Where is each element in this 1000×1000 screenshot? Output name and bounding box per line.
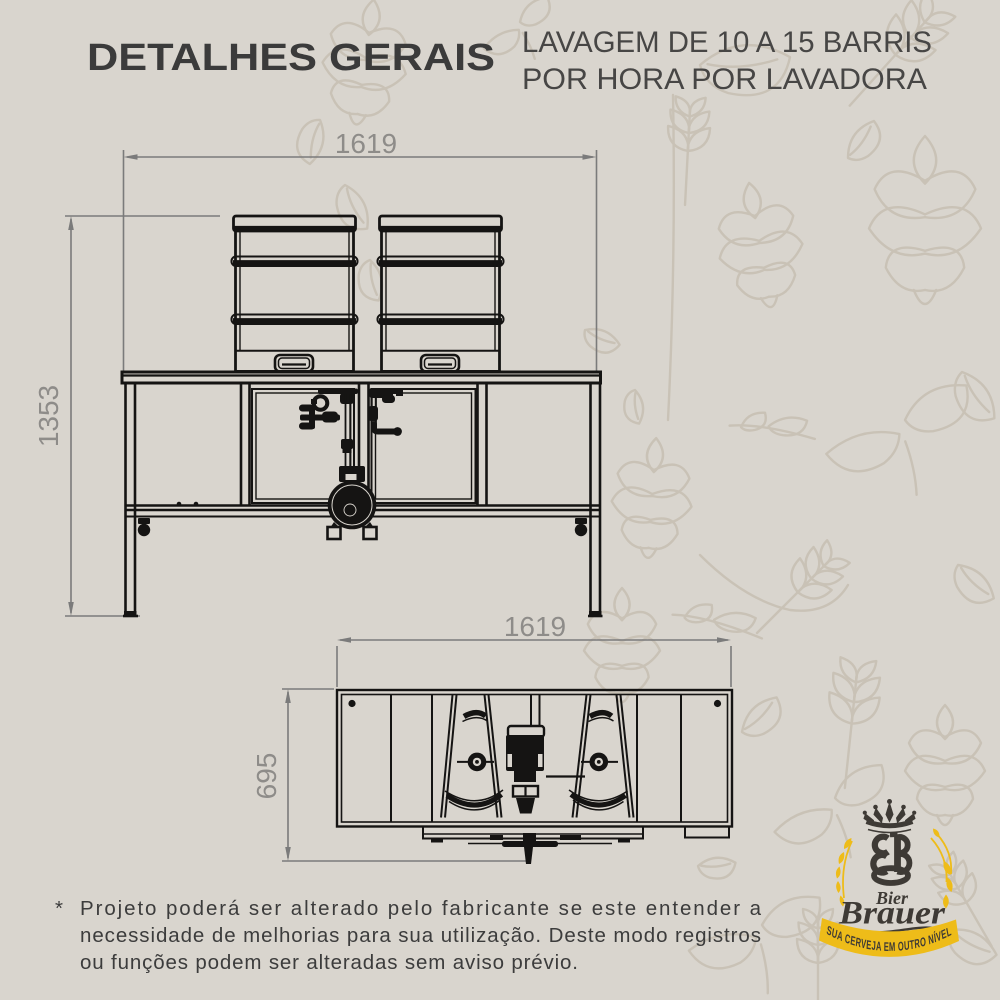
svg-text:1619: 1619 xyxy=(504,611,566,642)
svg-text:DETALHES GERAIS: DETALHES GERAIS xyxy=(87,37,495,79)
svg-text:Brauer: Brauer xyxy=(838,896,946,932)
svg-text:Projeto poderá ser alterado pe: Projeto poderá ser alterado pelo fabrica… xyxy=(80,897,762,920)
svg-text:*: * xyxy=(55,897,63,920)
svg-text:POR HORA POR LAVADORA: POR HORA POR LAVADORA xyxy=(522,63,927,96)
svg-text:necessidade de melhorias para: necessidade de melhorias para sua utiliz… xyxy=(80,924,761,947)
svg-text:1619: 1619 xyxy=(335,128,397,159)
svg-text:1353: 1353 xyxy=(33,385,64,447)
svg-text:695: 695 xyxy=(251,753,282,800)
svg-text:LAVAGEM DE 10 A 15 BARRIS: LAVAGEM DE 10 A 15 BARRIS xyxy=(522,26,932,59)
svg-text:ou funções podem ser alteradas: ou funções podem ser alteradas sem aviso… xyxy=(80,951,578,974)
